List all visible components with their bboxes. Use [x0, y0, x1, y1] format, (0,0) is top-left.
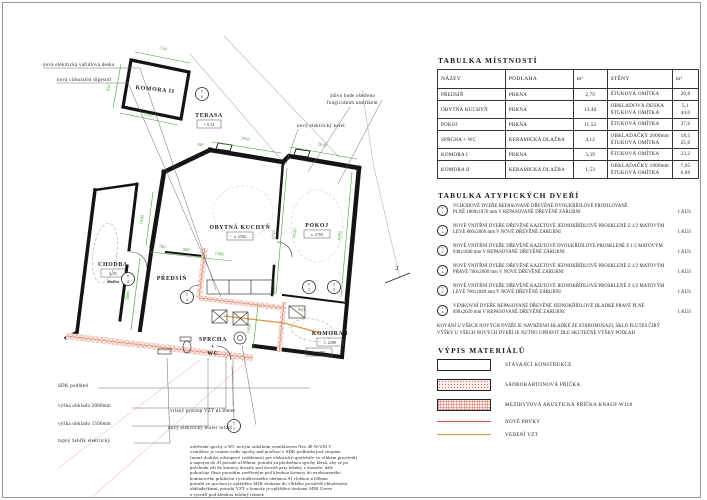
room-wall-areas: 37,6 [672, 119, 698, 131]
dim-label: 4745 [271, 229, 277, 239]
callout-vrtany-prostup: vrtaný prostup VZT ø130mm [170, 409, 235, 414]
door-tag-icon: T5 [437, 285, 448, 296]
door-count: 1 KUS [678, 210, 691, 216]
dim-label: 180 [196, 142, 204, 148]
legend-line-new-elements [437, 421, 491, 422]
room-walls: OBKLADAČKY 1900mmŠTUKOVÁ OMÍTKA [607, 161, 672, 179]
door-tag-number: 5 [333, 288, 335, 292]
door-line2: 690x2020 mm V REPASOVANÉ DŘEVĚNÉ ZÁRUBNI [453, 310, 565, 316]
legend-label: VEDENÍ VZT [505, 432, 538, 438]
wall-material: ŠTUKOVÁ OMÍTKA [611, 110, 669, 116]
dim-label: 1100 [214, 250, 224, 256]
door-tags: T 1 T 2 T 3 T 4 T 5 [122, 88, 341, 433]
room-floor: PRKNA [505, 149, 573, 161]
wall-area: 37,6 [676, 121, 695, 127]
doors-note-line: VÝŠKY U VŠECH NOVÝCH DVEŘÍ JE NUTNO UPRA… [437, 331, 699, 337]
section-marker: 2 [385, 265, 410, 283]
existing-walls [66, 143, 359, 357]
room-area: 4,12 [573, 131, 607, 149]
room-label-pokoj: POKOJ [305, 223, 328, 229]
door-count: 1 KUS [678, 310, 691, 316]
wall-material: ŠTUKOVÁ OMÍTKA [611, 91, 669, 97]
list-item: T3 NOVÉ VNITŘNÍ DVEŘE DŘEVĚNÉ KAZETOVÉ D… [437, 244, 699, 256]
col-header-nazev: NÁZEV [438, 70, 506, 89]
doors-section: TABULKA ATYPICKÝCH DVEŘÍ T1 VCHODOVÉ DVE… [437, 191, 699, 337]
dim-label: 1430 [138, 214, 144, 225]
room-label-terasa: TERASA [195, 113, 223, 119]
room-walls: ŠTUKOVÁ OMÍTKA [607, 119, 672, 131]
door-line2: PLNÉ 1000x1870 mm V REPASOVANÉ DŘEVĚNÉ Z… [453, 210, 581, 216]
door-description: VENKOVNÍ DVEŘE REPASOVANÉ DŘEVĚNÉ JEDNOK… [453, 304, 699, 316]
wall-material: ŠTUKOVÁ OMÍTKA [611, 121, 669, 127]
door-count: 1 KUS [678, 230, 691, 236]
pokoj-height: v. 2765 [311, 232, 323, 237]
legend-label: MEZIBYTOVÁ AKUSTICKÁ PŘÍČKA KNAUF W118 [505, 402, 632, 408]
col-header-podlaha: PODLAHA [505, 70, 573, 89]
col-header-m2-floor: m² [573, 70, 607, 89]
dim-label: 4190 [337, 230, 343, 240]
list-item: T4 NOVÉ VNITŘNÍ DVEŘE DŘEVĚNÉ KAZETOVÉ J… [437, 264, 699, 276]
room-walls: ŠTUKOVÁ OMÍTKA [607, 149, 672, 161]
list-item: MEZIBYTOVÁ AKUSTICKÁ PŘÍČKA KNAUF W118 [437, 399, 699, 411]
door-count: 1 KUS [678, 290, 691, 296]
door-tag-number: 3 [442, 251, 444, 254]
door-tag: T 5 [328, 281, 341, 294]
doors-note-line: KOVÁNÍ U VŠECH NOVÝCH DVEŘÍ JE NAVRŽENO … [437, 324, 699, 330]
materials-section: VÝPIS MATERIÁLŮ STÁVAJÍCÍ KONSTRUKCE SÁD… [437, 346, 699, 438]
door-description: NOVÉ VNITŘNÍ DVEŘE DŘEVĚNÉ KAZETOVÉ DVOU… [453, 244, 699, 256]
rooms-table-header: NÁZEV PODLAHA m² STĚNY m² [438, 70, 699, 89]
room-wall-areas: 5,144,0 [672, 101, 698, 119]
door-tag-number: 4 [442, 271, 444, 274]
rooms-table: NÁZEV PODLAHA m² STĚNY m² PŘEDSÍŇ PRKNA … [437, 69, 699, 179]
door-tag: T 3 [303, 281, 316, 294]
annotation-varidlova-deska: nová elektrická vařidlová deska [43, 63, 115, 68]
floor-plan: 750 950 1150 2450 2610 1430 780 900 1100… [0, 0, 437, 500]
dim-label: 800 [297, 307, 305, 313]
room-walls: OBKLADAČKY 2000mmŠTUKOVÁ OMÍTKA [607, 131, 672, 149]
annotation-sdk-podhled: SDK podhled [58, 384, 88, 389]
legend-swatch-drywall [437, 379, 491, 391]
legend-swatch-acoustic [437, 399, 491, 411]
room-area: 3,39 [573, 149, 607, 161]
wall-area: 23,2 [676, 151, 695, 157]
room-floor: KERAMICKÁ DLAŽBA [505, 161, 573, 179]
door-tag-number: 5 [442, 291, 444, 294]
door-tag-number: 4 [186, 298, 188, 302]
table-row: POKOJ PRKNA 11,52 ŠTUKOVÁ OMÍTKA 37,6 [438, 119, 699, 131]
door-description: NOVÉ VNITŘNÍ DVEŘE DŘEVĚNÉ KAZETOVÉ JEDN… [453, 264, 699, 276]
dim-label: 2610 [317, 141, 328, 147]
room-name: KOMORA I [438, 149, 506, 161]
room-name: PŘEDSÍŇ [438, 89, 506, 101]
table-row: SPRCHA + WC KERAMICKÁ DLAŽBA 4,12 OBKLAD… [438, 131, 699, 149]
room-area: 11,52 [573, 119, 607, 131]
door-line2: LEVÉ 700x1840 mm V NOVÉ DŘEVĚNÉ ZÁRUBNI [453, 290, 561, 296]
dim-label: 750 [159, 45, 167, 51]
door-tag-icon: T1 [437, 205, 448, 216]
door-tag-icon: T3 [437, 245, 448, 256]
door-tag-number: 1 [233, 427, 235, 431]
room-wall-areas: 18,525,6 [672, 131, 698, 149]
dim-label: 2080 [124, 290, 130, 301]
room-walls: OBKLADOVÁ DESKAŠTUKOVÁ OMÍTKA [607, 101, 672, 119]
room-label-chodba: CHODBA [98, 262, 128, 268]
terasa-level: + 0,14 [204, 122, 216, 128]
room-floor: PRKNA [505, 89, 573, 101]
room-wall-areas: 20,8 [672, 89, 698, 101]
list-item: T6 VENKOVNÍ DVEŘE REPASOVANÉ DŘEVĚNÉ JED… [437, 304, 699, 316]
drawing-sheet: 750 950 1150 2450 2610 1430 780 900 1100… [0, 0, 707, 500]
legend-line-vzt [437, 434, 491, 435]
room-wall-areas: 7,956,68 [672, 161, 698, 179]
door-line2: PRAVÉ 700x2000 mm V NOVÉ DŘEVĚNÉ ZÁRUBNI [453, 270, 564, 276]
dim-label: 950 [105, 83, 111, 91]
room-name: KOMORA II [438, 161, 506, 179]
wall-material: OBKLADOVÁ DESKA [611, 103, 669, 109]
door-tag-number: 2 [442, 231, 444, 234]
room-area: 2,79 [573, 89, 607, 101]
annotation-zdivo-2: fungicidním nástřikem [327, 101, 378, 106]
wall-area: 7,95 [676, 163, 695, 169]
annotation-kotel: nový elektrický kotel [297, 124, 345, 129]
door-tag-number: 6 [442, 311, 444, 314]
col-header-m2-walls: m² [672, 70, 698, 89]
chodba-area: 6,85 [109, 271, 116, 277]
technical-note-paragraph: odvětrání sprchy a WC novým radiálním ve… [190, 444, 448, 497]
dim-label: 4120 [292, 227, 298, 237]
right-panel: TABULKA MÍSTNOSTÍ NÁZEV PODLAHA m² STĚNY… [437, 56, 699, 445]
dim-label: 1500 [245, 323, 251, 334]
legend-label: STÁVAJÍCÍ KONSTRUKCE [505, 362, 572, 368]
chodba-floor: dlažba [107, 279, 120, 284]
room-label-predsin: PŘEDSÍŇ [157, 274, 187, 282]
legend-label: SÁDROKARTONOVÁ PŘÍČKA [505, 382, 580, 388]
room-floor: KERAMICKÁ DLAŽBA [505, 131, 573, 149]
wall-material: OBKLADAČKY 2000mm [611, 133, 669, 139]
annotation-obklad-1500: výška obkladu 1500mm [58, 422, 111, 427]
table-row: PŘEDSÍŇ PRKNA 2,79 ŠTUKOVÁ OMÍTKA 20,8 [438, 89, 699, 101]
komora1-height1: v. 2390 [324, 340, 336, 345]
wall-area: 5,1 [676, 103, 695, 109]
room-floor: PRKNA [505, 101, 573, 119]
door-tag-number: 2 [127, 280, 129, 284]
door-description: NOVÉ VNITŘNÍ DVEŘE DŘEVĚNÉ KAZETOVÉ JEDN… [453, 224, 699, 236]
room-label-kuchyn: OBYTNÁ KUCHYŇ [209, 223, 270, 231]
table-row: OBYTNÁ KUCHYŇ PRKNA 13,40 OBKLADOVÁ DESK… [438, 101, 699, 119]
list-item: VEDENÍ VZT [437, 432, 699, 438]
kuchyn-height: v. 2765 [234, 234, 246, 239]
door-tag: T 2 [122, 273, 135, 286]
door-tag-icon: T4 [437, 265, 448, 276]
materials-title: VÝPIS MATERIÁLŮ [438, 346, 699, 355]
list-item: STÁVAJÍCÍ KONSTRUKCE [437, 359, 699, 371]
dim-label: 900 [182, 247, 190, 253]
room-label-sprcha: SPRCHA [199, 337, 227, 343]
door-description: NOVÉ VNITŘNÍ DVEŘE DŘEVĚNÉ KAZETOVÉ JEDN… [453, 284, 699, 296]
list-item: T1 VCHODOVÉ DVEŘE REPASOVANÉ DŘEVĚNÉ DVO… [437, 204, 699, 216]
door-tag: T 4 [181, 291, 194, 304]
note-line: a vytváří pod klenbou falešný trámek [190, 492, 448, 497]
komora1-height2: v. 1780 [313, 350, 325, 355]
list-item: NOVÉ PRVKY [437, 419, 699, 425]
wall-material: OBKLADAČKY 1900mm [611, 163, 669, 169]
dim-label: 780 [158, 244, 166, 250]
wall-material: ŠTUKOVÁ OMÍTKA [611, 151, 669, 157]
wall-area: 44,0 [676, 110, 695, 116]
door-tag-icon: T2 [437, 225, 448, 236]
section-number: 2 [395, 265, 398, 272]
legend-swatch-existing [437, 359, 491, 371]
annotation-obklad-2000: výška obkladu 2000mm [58, 404, 111, 409]
sprcha-wc: WC [207, 351, 218, 357]
col-header-steny: STĚNY [607, 70, 672, 89]
list-item: T2 NOVÉ VNITŘNÍ DVEŘE DŘEVĚNÉ KAZETOVÉ J… [437, 224, 699, 236]
door-tag-number: 3 [308, 288, 310, 292]
door-tag: T 6 [196, 88, 209, 101]
door-line2: LEVÉ 800x2000 mm V NOVÉ DŘEVĚNÉ ZÁRUBNI [453, 230, 561, 236]
doors-notes: KOVÁNÍ U VŠECH NOVÝCH DVEŘÍ JE NAVRŽENO … [437, 324, 699, 337]
room-name: OBYTNÁ KUCHYŇ [438, 101, 506, 119]
room-label-komora1: KOMORA I [312, 331, 348, 337]
door-tag-number: 6 [201, 95, 203, 99]
room-name: POKOJ [438, 119, 506, 131]
annotation-zdivo-1: zdivo bude ošetřeno [330, 94, 375, 99]
wall-area: 25,6 [676, 140, 695, 146]
wall-area: 20,8 [676, 91, 695, 97]
rooms-table-title: TABULKA MÍSTNOSTÍ [438, 56, 699, 65]
table-row: KOMORA I PRKNA 3,39 ŠTUKOVÁ OMÍTKA 23,2 [438, 149, 699, 161]
door-description: VCHODOVÉ DVEŘE REPASOVANÉ DŘEVĚNÉ DVOUKŘ… [453, 204, 699, 216]
legend-label: NOVÉ PRVKY [505, 419, 540, 425]
dim-label: 1150 [143, 111, 154, 118]
room-area: 13,40 [573, 101, 607, 119]
wall-material: ŠTUKOVÁ OMÍTKA [611, 140, 669, 146]
door-count: 1 KUS [678, 250, 691, 256]
annotation-digestor: nová cirkulační digestoř [57, 78, 112, 83]
wall-material: ŠTUKOVÁ OMÍTKA [611, 170, 669, 176]
table-row: KOMORA II KERAMICKÁ DLAŽBA 1,53 OBKLADAČ… [438, 161, 699, 179]
room-name: SPRCHA + WC [438, 131, 506, 149]
callout-boiler: nový elektrický boiler ležatý [168, 426, 233, 431]
room-wall-areas: 23,2 [672, 149, 698, 161]
doors-table-title: TABULKA ATYPICKÝCH DVEŘÍ [438, 191, 699, 200]
wall-area: 6,68 [676, 170, 695, 176]
door-line2: 940x1840 mm V REPASOVANÉ DŘEVĚNÉ ZÁRUBNI [453, 250, 565, 256]
door-tag-icon: T6 [437, 305, 448, 316]
vzt-duct-line [224, 316, 320, 333]
room-area: 1,53 [573, 161, 607, 179]
room-floor: PRKNA [505, 119, 573, 131]
wall-area: 18,5 [676, 133, 695, 139]
list-item: T5 NOVÉ VNITŘNÍ DVEŘE DŘEVĚNÉ KAZETOVÉ J… [437, 284, 699, 296]
dim-label: 2450 [240, 135, 251, 141]
sprcha-plus: + [211, 344, 215, 350]
door-tag-number: 1 [442, 211, 444, 214]
room-walls: ŠTUKOVÁ OMÍTKA [607, 89, 672, 101]
list-item: SÁDROKARTONOVÁ PŘÍČKA [437, 379, 699, 391]
door-count: 1 KUS [678, 270, 691, 276]
annotation-topny-zebrik: topný žebřík elektrický [58, 439, 111, 444]
